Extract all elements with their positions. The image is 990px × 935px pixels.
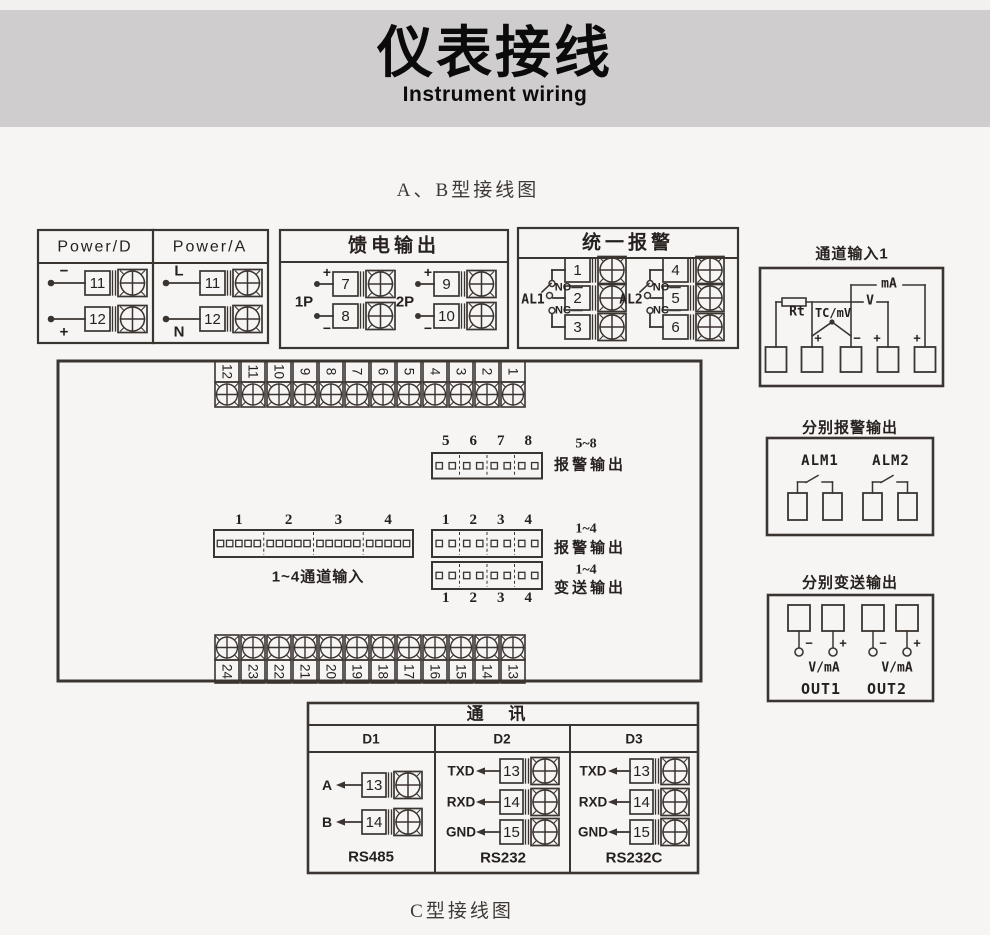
screw-tick: [442, 636, 446, 640]
pin-square: [326, 540, 332, 546]
polarity-sign: +: [424, 264, 432, 280]
strip-number: 12: [220, 364, 235, 379]
out-terminal-square: [788, 605, 810, 631]
polarity-sign: +: [913, 331, 921, 346]
pin-square: [491, 572, 497, 578]
screw-tick: [450, 383, 454, 387]
pin-square: [491, 540, 497, 546]
screw-tick: [312, 655, 316, 659]
screw-tick: [260, 402, 264, 406]
screw-tick: [450, 655, 454, 659]
connector-number: 6: [470, 433, 478, 449]
screw-tick: [346, 402, 350, 406]
connector-number: 1: [235, 512, 243, 528]
pin-square: [285, 540, 291, 546]
screw-tick: [338, 655, 342, 659]
left-arrowhead: [476, 798, 485, 805]
screw-tick: [553, 820, 557, 824]
pin-square: [385, 540, 391, 546]
polarity-sign: +: [814, 331, 822, 346]
screw-tick: [389, 324, 393, 328]
strip-number: 5: [402, 368, 417, 376]
strip-number: 3: [454, 368, 469, 376]
screw-tick: [698, 306, 702, 310]
screw-tick: [683, 759, 687, 763]
screw-tick: [494, 655, 498, 659]
screw-tick: [533, 840, 537, 844]
alm-label: ALM1: [801, 453, 839, 469]
switch-arm: [806, 476, 818, 483]
screw-tick: [368, 272, 372, 276]
screw-tick: [600, 286, 604, 290]
pin-square: [464, 572, 470, 578]
power-d-header: Power/D: [57, 239, 132, 256]
power-a-header: Power/A: [173, 239, 247, 256]
strip-number: 8: [324, 368, 339, 376]
screw-tick: [494, 636, 498, 640]
strip-number: 7: [350, 368, 365, 376]
screw-tick: [469, 324, 473, 328]
screw-tick: [416, 830, 420, 834]
screw-tick: [312, 402, 316, 406]
screw-tick: [368, 304, 372, 308]
pin-square: [335, 540, 341, 546]
banana-jack: [903, 648, 911, 656]
pin-square: [317, 540, 323, 546]
pin-square: [464, 463, 470, 469]
polarity-sign: −: [805, 636, 813, 651]
strip-number: 4: [428, 368, 443, 376]
pin-square: [267, 540, 273, 546]
terminal-number: 6: [671, 319, 679, 336]
screw-tick: [600, 335, 604, 339]
screw-tick: [442, 383, 446, 387]
screw-tick: [390, 655, 394, 659]
terminal-number: 13: [366, 777, 383, 794]
screw-tick: [389, 292, 393, 296]
strip-number: 6: [376, 368, 391, 376]
terminal-number: 14: [503, 794, 520, 811]
screw-tick: [533, 820, 537, 824]
v-label: V: [866, 294, 874, 309]
screw-tick: [216, 402, 220, 406]
polarity-sign: +: [60, 324, 69, 341]
terminal-number: 2: [573, 290, 581, 307]
strip-number: 22: [272, 664, 287, 679]
pin-square: [254, 540, 260, 546]
screw-tick: [533, 759, 537, 763]
terminal-number: 15: [633, 824, 650, 841]
feed-box-header: 馈电输出: [348, 234, 440, 257]
common-contact: [547, 293, 553, 299]
screw-tick: [502, 402, 506, 406]
separate-transmit-title: 分别变送输出: [802, 574, 898, 592]
left-arrowhead: [336, 818, 345, 825]
screw-tick: [141, 327, 145, 331]
screw-tick: [368, 324, 372, 328]
screw-tick: [235, 271, 239, 275]
screw-tick: [533, 779, 537, 783]
screw-tick: [424, 402, 428, 406]
screw-tick: [600, 278, 604, 282]
screw-tick: [663, 840, 667, 844]
screw-tick: [718, 306, 722, 310]
screw-tick: [260, 383, 264, 387]
pin-square: [403, 540, 409, 546]
banana-jack: [795, 648, 803, 656]
terminal-number: 4: [671, 262, 679, 279]
screw-tick: [312, 636, 316, 640]
terminal-number: 11: [205, 275, 221, 292]
strip-number: 23: [246, 664, 261, 679]
screw-tick: [533, 790, 537, 794]
screw-tick: [338, 383, 342, 387]
screw-tick: [286, 655, 290, 659]
no-label: NO: [653, 282, 670, 294]
screw-tick: [364, 383, 368, 387]
polarity-sign: +: [913, 636, 921, 651]
screw-tick: [372, 402, 376, 406]
terminal-number: 5: [671, 290, 679, 307]
screw-tick: [141, 291, 145, 295]
screw-tick: [502, 636, 506, 640]
screw-tick: [242, 655, 246, 659]
screw-tick: [600, 315, 604, 319]
screw-tick: [416, 383, 420, 387]
screw-tick: [416, 636, 420, 640]
pin-square: [436, 463, 442, 469]
strip-number: 24: [220, 664, 235, 680]
screw-tick: [364, 402, 368, 406]
screw-tick: [256, 307, 260, 311]
screw-tick: [235, 291, 239, 295]
polarity-sign: L: [174, 263, 183, 280]
screw-tick: [663, 810, 667, 814]
screw-tick: [390, 383, 394, 387]
left-arrowhead: [476, 828, 485, 835]
screw-tick: [683, 790, 687, 794]
nc-label: NC: [555, 305, 571, 317]
strip-number: 1: [506, 368, 521, 376]
signal-label: GND: [578, 825, 608, 840]
screw-tick: [294, 655, 298, 659]
pin-square: [394, 540, 400, 546]
tc-label: TC/mV: [815, 306, 851, 320]
pin-square: [449, 540, 455, 546]
input-terminal-square: [841, 347, 862, 372]
screw-tick: [698, 335, 702, 339]
pin-square: [436, 572, 442, 578]
screw-tick: [553, 759, 557, 763]
terminal-number: 14: [366, 814, 383, 831]
screw-tick: [294, 636, 298, 640]
screw-tick: [600, 306, 604, 310]
terminal-number: 12: [204, 311, 221, 328]
pin-square: [519, 540, 525, 546]
polarity-sign: N: [174, 324, 185, 341]
connector-number: 2: [470, 512, 478, 528]
screw-tick: [698, 278, 702, 282]
screw-tick: [364, 655, 368, 659]
switch-arm: [881, 476, 893, 483]
comm-standard: RS485: [348, 849, 394, 866]
screw-tick: [390, 636, 394, 640]
connector-number: 4: [525, 590, 533, 606]
screw-tick: [442, 655, 446, 659]
left-arrowhead: [336, 781, 345, 788]
screw-tick: [398, 402, 402, 406]
screw-tick: [553, 779, 557, 783]
pin-square: [236, 540, 242, 546]
screw-tick: [416, 793, 420, 797]
screw-tick: [424, 636, 428, 640]
strip-number: 18: [376, 664, 391, 679]
screw-tick: [216, 383, 220, 387]
screw-tick: [346, 636, 350, 640]
connector-number: 7: [497, 433, 505, 449]
screw-tick: [294, 402, 298, 406]
pin-square: [532, 540, 538, 546]
screw-tick: [553, 840, 557, 844]
screw-tick: [490, 324, 494, 328]
alm-label: ALM2: [872, 453, 910, 469]
terminal-number: 13: [633, 763, 650, 780]
pin-square: [477, 572, 483, 578]
pin-square: [504, 463, 510, 469]
connector-number: 3: [335, 512, 343, 528]
screw-tick: [286, 636, 290, 640]
strip-number: 19: [350, 664, 365, 679]
screw-tick: [416, 402, 420, 406]
comm-column-header: D2: [493, 732, 510, 747]
screw-tick: [683, 820, 687, 824]
comm-header: 通 讯: [467, 705, 536, 724]
screw-tick: [364, 636, 368, 640]
screw-tick: [469, 304, 473, 308]
nc-label: NC: [653, 305, 669, 317]
screw-tick: [663, 779, 667, 783]
screw-tick: [260, 655, 264, 659]
alm-terminal-square: [898, 493, 917, 520]
screw-tick: [368, 292, 372, 296]
screw-tick: [216, 636, 220, 640]
out-terminal-square: [862, 605, 884, 631]
screw-tick: [120, 291, 124, 295]
screw-tick: [346, 655, 350, 659]
left-arrowhead: [476, 767, 485, 774]
switch-arm: [640, 284, 649, 293]
signal-label: RXD: [579, 795, 608, 810]
no-label: NO: [555, 282, 572, 294]
strip-number: 15: [454, 664, 469, 679]
screw-tick: [396, 793, 400, 797]
pin-square: [519, 463, 525, 469]
polarity-sign: −: [853, 331, 861, 346]
screw-tick: [235, 327, 239, 331]
alm-terminal-square: [788, 493, 807, 520]
connector-label: 变送输出: [554, 579, 626, 597]
feed-group-label: 2P: [396, 294, 414, 311]
screw-tick: [476, 636, 480, 640]
out-label: OUT2: [867, 680, 907, 698]
strip-number: 20: [324, 664, 339, 679]
screw-tick: [468, 636, 472, 640]
screw-tick: [620, 286, 624, 290]
screw-tick: [268, 636, 272, 640]
separate-alarm-title: 分别报警输出: [802, 419, 898, 437]
connector-number: 1: [442, 590, 450, 606]
connector-number: 5: [442, 433, 450, 449]
input-terminal-square: [915, 347, 936, 372]
signal-label: TXD: [580, 764, 607, 779]
screw-tick: [494, 383, 498, 387]
screw-tick: [234, 383, 238, 387]
screw-tick: [663, 820, 667, 824]
pin-square: [276, 540, 282, 546]
screw-tick: [120, 327, 124, 331]
screw-tick: [268, 383, 272, 387]
connector-label: 报警输出: [554, 456, 626, 474]
terminal-number: 7: [341, 276, 349, 293]
connector-label: 1~4通道输入: [272, 568, 364, 586]
signal-label: A: [322, 777, 332, 793]
screw-tick: [469, 272, 473, 276]
screw-tick: [468, 655, 472, 659]
comm-standard: RS232C: [606, 850, 663, 867]
rt-label: Rt: [789, 305, 805, 320]
screw-tick: [416, 655, 420, 659]
pin-square: [226, 540, 232, 546]
screw-tick: [390, 402, 394, 406]
terminal-number: 9: [442, 276, 450, 293]
screw-tick: [424, 655, 428, 659]
out-terminal-square: [822, 605, 844, 631]
connector-number: 4: [525, 512, 533, 528]
unit-label: V/mA: [881, 661, 912, 676]
pin-square: [449, 572, 455, 578]
polarity-sign: −: [879, 636, 887, 651]
terminal-number: 10: [438, 308, 455, 325]
pin-square: [344, 540, 350, 546]
screw-tick: [338, 402, 342, 406]
connector-number: 2: [470, 590, 478, 606]
screw-tick: [216, 655, 220, 659]
screw-tick: [520, 402, 524, 406]
screw-tick: [242, 383, 246, 387]
screw-tick: [120, 307, 124, 311]
banana-jack: [869, 648, 877, 656]
terminal-number: 3: [573, 319, 581, 336]
strip-number: 17: [402, 664, 417, 679]
connector-number: 4: [384, 512, 392, 528]
left-arrowhead: [608, 767, 617, 774]
screw-tick: [490, 292, 494, 296]
strip-number: 21: [298, 664, 313, 679]
screw-tick: [120, 271, 124, 275]
screw-tick: [490, 304, 494, 308]
screw-tick: [320, 636, 324, 640]
terminal-number: 11: [90, 275, 106, 292]
screw-tick: [338, 636, 342, 640]
strip-number: 13: [506, 664, 521, 679]
connector-number: 3: [497, 590, 505, 606]
screw-tick: [490, 272, 494, 276]
pin-square: [491, 463, 497, 469]
polarity-sign: −: [424, 320, 432, 336]
pin-square: [295, 540, 301, 546]
channel-input-title: 通道输入1: [815, 245, 888, 263]
screw-tick: [468, 402, 472, 406]
screw-tick: [242, 402, 246, 406]
pin-square: [464, 540, 470, 546]
screw-tick: [442, 402, 446, 406]
screw-tick: [320, 383, 324, 387]
screw-tick: [234, 402, 238, 406]
screw-tick: [256, 271, 260, 275]
main-board-box: [58, 361, 701, 681]
pin-square: [532, 463, 538, 469]
signal-label: GND: [446, 825, 476, 840]
strip-number: 16: [428, 664, 443, 679]
screw-tick: [416, 773, 420, 777]
screw-tick: [683, 840, 687, 844]
tc-junction: [829, 319, 834, 324]
screw-tick: [398, 655, 402, 659]
switch-arm: [542, 284, 551, 293]
pin-square: [519, 572, 525, 578]
strip-number: 10: [272, 364, 287, 379]
feed-group-label: 1P: [295, 294, 313, 311]
page: 仪表接线 Instrument wiring A、B型接线图 C型接线图 Pow…: [0, 0, 990, 935]
screw-tick: [450, 636, 454, 640]
pin-square: [376, 540, 382, 546]
signal-label: TXD: [448, 764, 475, 779]
screw-tick: [242, 636, 246, 640]
connector-number: 2: [285, 512, 293, 528]
screw-tick: [256, 291, 260, 295]
terminal-number: 14: [633, 794, 650, 811]
screw-tick: [234, 636, 238, 640]
screw-tick: [294, 383, 298, 387]
screw-tick: [620, 315, 624, 319]
screw-tick: [320, 655, 324, 659]
pin-square: [477, 463, 483, 469]
alm-terminal-square: [823, 493, 842, 520]
screw-tick: [416, 810, 420, 814]
signal-label: B: [322, 814, 332, 830]
screw-tick: [476, 383, 480, 387]
screw-tick: [396, 830, 400, 834]
unified-alarm-header: 统一报警: [582, 231, 674, 254]
screw-tick: [389, 304, 393, 308]
screw-tick: [268, 402, 272, 406]
screw-tick: [683, 810, 687, 814]
pin-square: [354, 540, 360, 546]
screw-tick: [424, 383, 428, 387]
screw-tick: [396, 810, 400, 814]
screw-tick: [286, 383, 290, 387]
strip-number: 2: [480, 368, 495, 376]
pin-square: [532, 572, 538, 578]
input-terminal-square: [766, 347, 787, 372]
screw-tick: [260, 636, 264, 640]
screw-tick: [398, 383, 402, 387]
screw-tick: [268, 655, 272, 659]
screw-tick: [396, 773, 400, 777]
pin-square: [217, 540, 223, 546]
pin-square: [477, 540, 483, 546]
screw-tick: [256, 327, 260, 331]
